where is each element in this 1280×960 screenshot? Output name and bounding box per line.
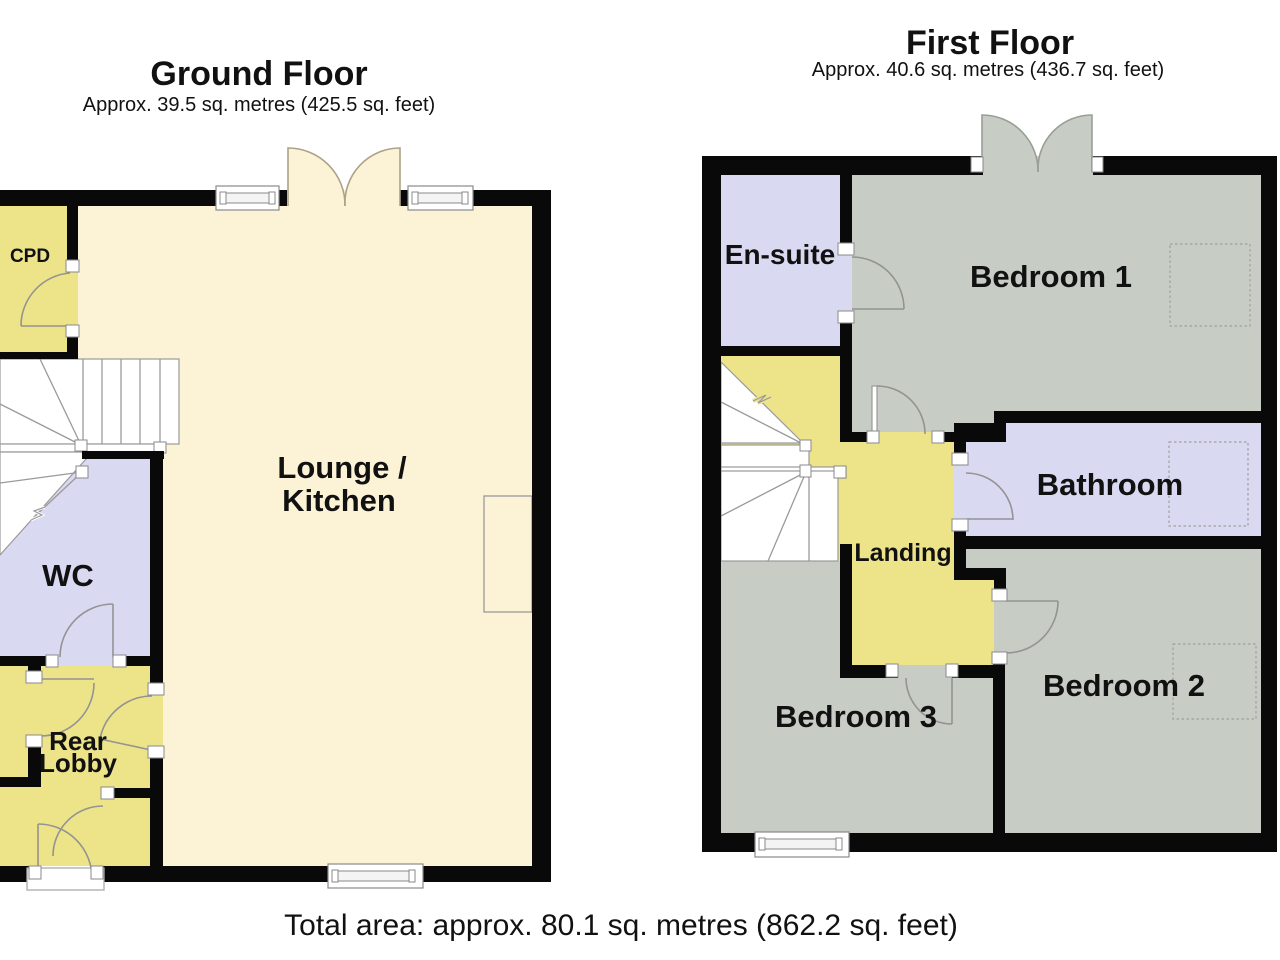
svg-text:CPD: CPD	[10, 246, 50, 267]
svg-text:First Floor: First Floor	[906, 24, 1074, 62]
svg-text:Approx. 39.5 sq. metres (425.5: Approx. 39.5 sq. metres (425.5 sq. feet)	[83, 94, 435, 116]
svg-text:Bathroom: Bathroom	[1037, 467, 1183, 502]
svg-text:Lounge /: Lounge /	[277, 450, 407, 485]
svg-text:Bedroom 3: Bedroom 3	[775, 699, 937, 734]
svg-text:Approx. 40.6 sq. metres (436.7: Approx. 40.6 sq. metres (436.7 sq. feet)	[812, 59, 1164, 81]
svg-text:Total area: approx. 80.1 sq. m: Total area: approx. 80.1 sq. metres (862…	[284, 909, 958, 942]
svg-text:Lobby: Lobby	[39, 748, 118, 778]
svg-text:Kitchen: Kitchen	[282, 483, 396, 518]
svg-text:Bedroom 2: Bedroom 2	[1043, 668, 1205, 703]
svg-text:En-suite: En-suite	[725, 239, 835, 270]
svg-text:WC: WC	[42, 558, 94, 593]
svg-text:Bedroom 1: Bedroom 1	[970, 259, 1132, 294]
svg-text:Landing: Landing	[854, 539, 951, 567]
svg-text:Ground Floor: Ground Floor	[150, 55, 367, 93]
